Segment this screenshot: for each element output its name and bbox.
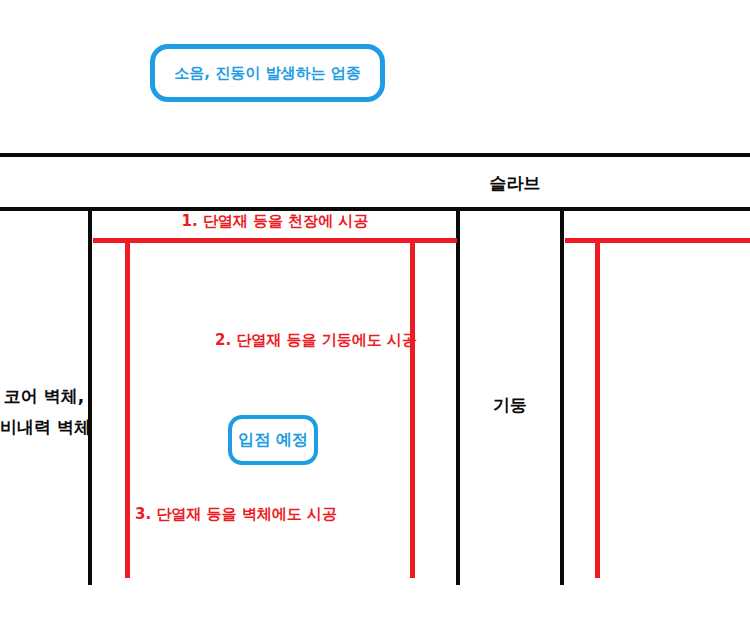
noise-business-callout: 소음, 진동이 발생하는 업종 [150, 44, 385, 102]
core-wall-label: 코어 벽체, 비내력 벽체 [0, 381, 88, 443]
insulation-diagram: 소음, 진동이 발생하는 업종 슬라브 1. 단열재 등을 천장에 시공 2. … [0, 0, 750, 617]
wall-insulation-line [125, 240, 130, 578]
column-right-line [560, 211, 564, 585]
tenant-callout: 입점 예정 [228, 415, 318, 465]
annotation-ceiling: 1. 단열재 등을 천장에 시공 [97, 212, 453, 231]
core-wall-label-line1: 코어 벽체, [0, 381, 88, 412]
ceiling-insulation-line-right [565, 238, 750, 243]
column-insulation-line [410, 240, 415, 578]
annotation-column: 2. 단열재 등을 기둥에도 시공 [215, 331, 417, 350]
slab-label-text: 슬라브 [460, 172, 570, 195]
slab-top-line [0, 153, 750, 157]
ceiling-insulation-line [93, 238, 457, 243]
tenant-callout-label: 입점 예정 [238, 430, 308, 451]
noise-business-callout-label: 소음, 진동이 발생하는 업종 [174, 64, 360, 83]
column-insulation-line-right [595, 240, 600, 578]
slab-label: 슬라브 [460, 172, 570, 195]
core-wall-line [88, 211, 92, 585]
core-wall-label-line2: 비내력 벽체 [0, 412, 88, 443]
column-label: 기둥 [460, 394, 560, 417]
slab-bottom-line [0, 207, 750, 211]
annotation-wall: 3. 단열재 등을 벽체에도 시공 [135, 505, 337, 524]
